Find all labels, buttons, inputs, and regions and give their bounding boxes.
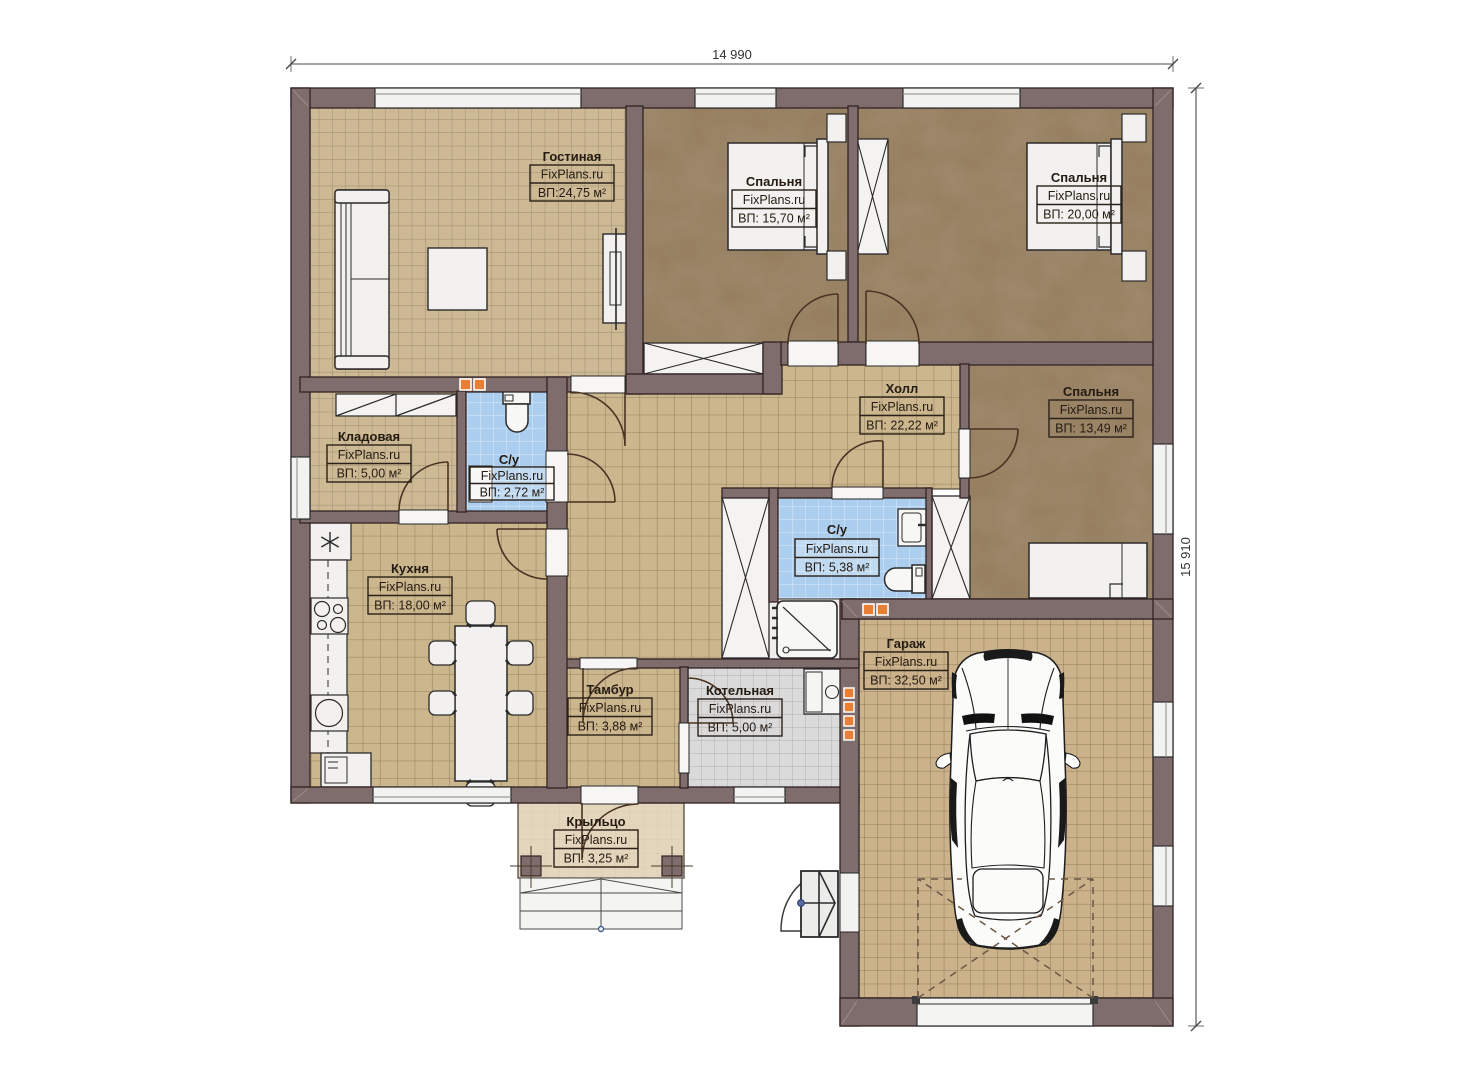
svg-text:Холл: Холл: [886, 381, 919, 396]
svg-text:FixPlans.ru: FixPlans.ru: [541, 168, 604, 182]
svg-text:ВП: 18,00 м²: ВП: 18,00 м²: [374, 599, 446, 613]
svg-text:FixPlans.ru: FixPlans.ru: [806, 542, 869, 556]
svg-text:FixPlans.ru: FixPlans.ru: [579, 701, 642, 715]
svg-text:Крыльцо: Крыльцо: [566, 814, 625, 829]
svg-text:Спальня: Спальня: [746, 174, 802, 189]
svg-text:FixPlans.ru: FixPlans.ru: [1048, 189, 1111, 203]
svg-text:ВП: 5,00 м²: ВП: 5,00 м²: [337, 467, 402, 481]
svg-text:ВП: 5,00 м²: ВП: 5,00 м²: [708, 721, 773, 735]
svg-text:FixPlans.ru: FixPlans.ru: [481, 469, 544, 483]
svg-text:ВП: 13,49 м²: ВП: 13,49 м²: [1055, 422, 1127, 436]
svg-text:FixPlans.ru: FixPlans.ru: [565, 833, 628, 847]
svg-text:FixPlans.ru: FixPlans.ru: [743, 193, 806, 207]
svg-text:ВП: 2,72 м²: ВП: 2,72 м²: [480, 486, 545, 500]
svg-text:FixPlans.ru: FixPlans.ru: [338, 448, 401, 462]
svg-text:С/у: С/у: [827, 522, 848, 537]
svg-text:14 990: 14 990: [712, 47, 752, 62]
svg-text:FixPlans.ru: FixPlans.ru: [1060, 403, 1123, 417]
svg-text:Гараж: Гараж: [887, 636, 927, 651]
svg-text:15 910: 15 910: [1178, 537, 1193, 577]
svg-text:ВП: 32,50 м²: ВП: 32,50 м²: [870, 674, 942, 688]
svg-text:С/у: С/у: [499, 452, 520, 467]
svg-text:ВП: 15,70 м²: ВП: 15,70 м²: [738, 212, 810, 226]
svg-text:Спальня: Спальня: [1051, 170, 1107, 185]
svg-text:ВП: 3,88 м²: ВП: 3,88 м²: [578, 720, 643, 734]
svg-text:FixPlans.ru: FixPlans.ru: [709, 702, 772, 716]
svg-text:FixPlans.ru: FixPlans.ru: [379, 580, 442, 594]
svg-text:Котельная: Котельная: [706, 683, 774, 698]
svg-text:ВП: 20,00 м²: ВП: 20,00 м²: [1043, 208, 1115, 222]
svg-text:Гостиная: Гостиная: [543, 149, 602, 164]
svg-text:Кладовая: Кладовая: [338, 429, 400, 444]
svg-text:Кухня: Кухня: [391, 561, 429, 576]
svg-text:ВП: 22,22 м²: ВП: 22,22 м²: [866, 419, 938, 433]
svg-text:FixPlans.ru: FixPlans.ru: [871, 400, 934, 414]
svg-text:Тамбур: Тамбур: [586, 682, 633, 697]
svg-text:Спальня: Спальня: [1063, 384, 1119, 399]
svg-text:ВП: 3,25 м²: ВП: 3,25 м²: [564, 852, 629, 866]
svg-text:ВП: 5,38 м²: ВП: 5,38 м²: [805, 561, 870, 575]
svg-text:ВП:24,75 м²: ВП:24,75 м²: [538, 186, 606, 200]
svg-text:FixPlans.ru: FixPlans.ru: [875, 655, 938, 669]
